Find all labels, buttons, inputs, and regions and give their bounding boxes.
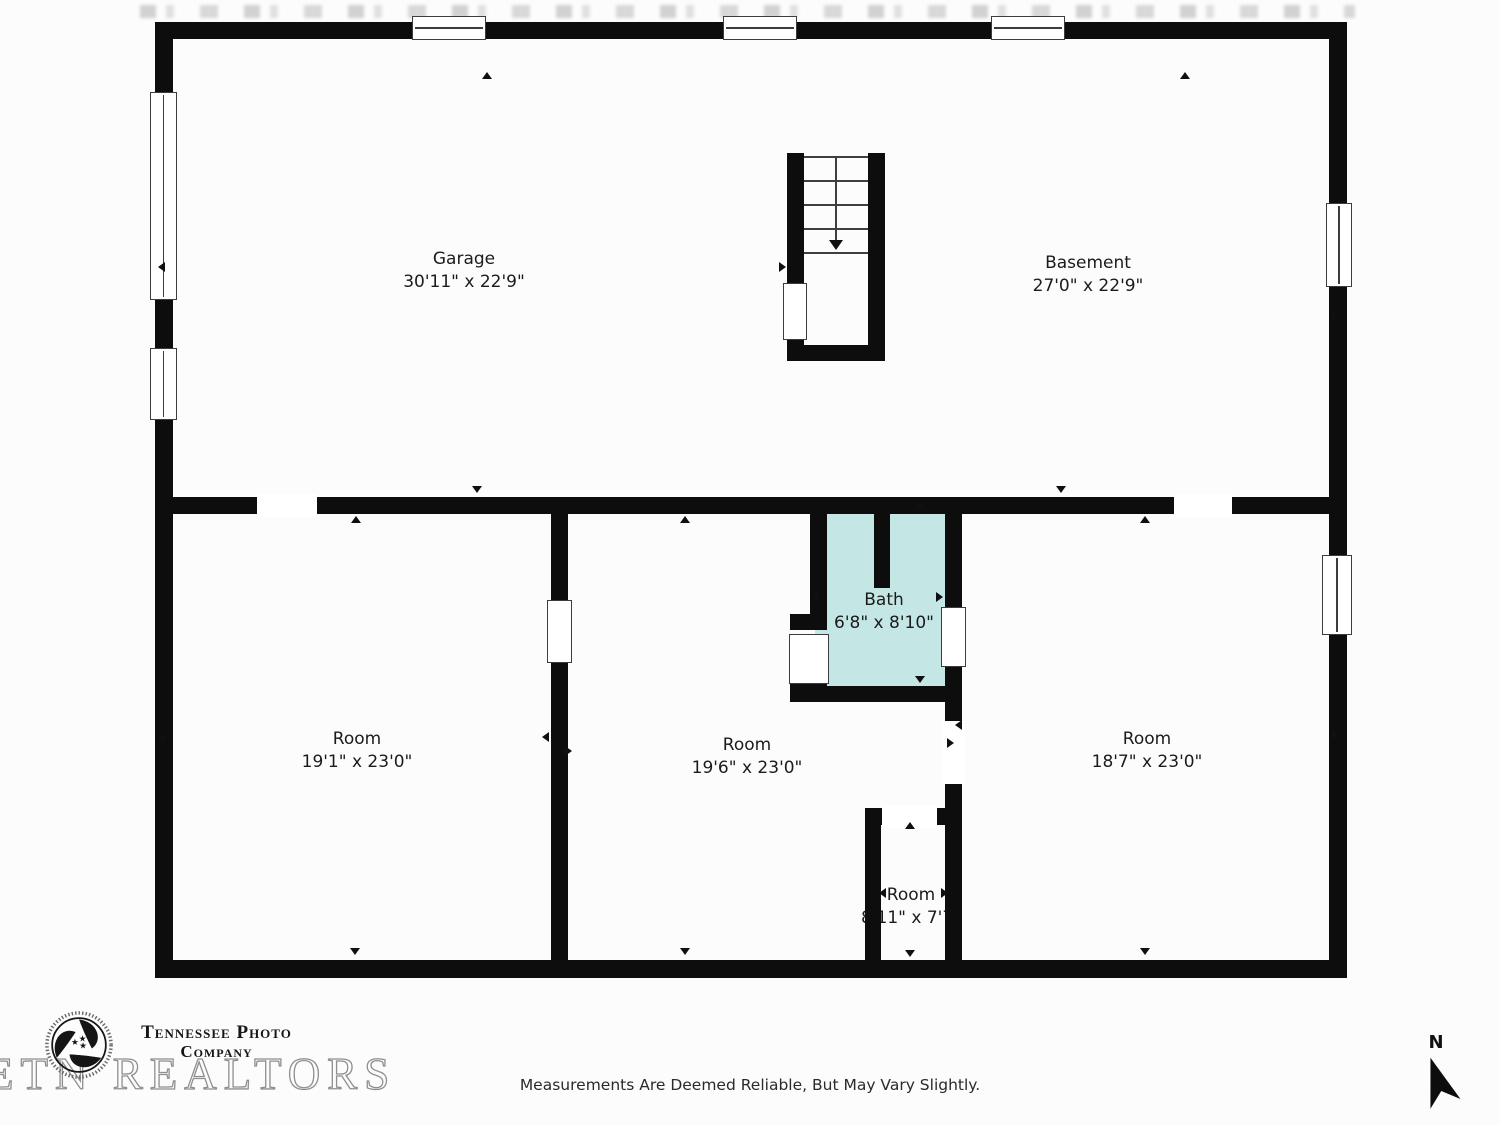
room-dims: 27'0" x 22'9" [1033, 275, 1144, 298]
doorway-gap [942, 721, 965, 784]
measure-arrow-icon [812, 592, 819, 602]
measure-arrow-icon [1140, 948, 1150, 955]
room-label-bath: Bath 6'8" x 8'10" [834, 589, 934, 635]
wall-outer-bottom [155, 960, 1345, 978]
window-symbol [1326, 203, 1352, 287]
window-symbol [412, 16, 486, 40]
room-name: Bath [834, 589, 934, 612]
measure-arrow-icon [1180, 72, 1190, 79]
measure-arrow-icon [905, 822, 915, 829]
window-pane-line [163, 351, 165, 417]
room-dims: 19'1" x 23'0" [302, 751, 413, 774]
measure-arrow-icon [542, 732, 549, 742]
room-dims: 19'6" x 23'0" [692, 757, 803, 780]
floor-plan: Garage 30'11" x 22'9" Basement 27'0" x 2… [0, 0, 1500, 1125]
measure-arrow-icon [350, 948, 360, 955]
room-name: Room [1092, 728, 1203, 751]
measure-arrow-icon [472, 486, 482, 493]
window-pane-line [994, 27, 1062, 29]
measure-arrow-icon [1332, 310, 1339, 320]
room-name: Basement [1033, 252, 1144, 275]
stair-direction-arrow-icon [829, 240, 843, 250]
room-label-right: Room 18'7" x 23'0" [1092, 728, 1203, 774]
measure-arrow-icon [1332, 730, 1339, 740]
window-pane-line [415, 27, 483, 29]
measure-arrow-icon [941, 888, 948, 898]
wall-mid-left [551, 497, 568, 960]
disclaimer-text: Measurements Are Deemed Reliable, But Ma… [0, 1076, 1500, 1094]
wall-bath-jog [790, 614, 827, 630]
svg-text:★: ★ [79, 1035, 87, 1045]
measure-arrow-icon [936, 592, 943, 602]
room-label-basement: Basement 27'0" x 22'9" [1033, 252, 1144, 298]
north-arrow-icon [1410, 1053, 1468, 1115]
room-label-left: Room 19'1" x 23'0" [302, 728, 413, 774]
doorway-gap [257, 494, 317, 517]
wall-stair-right [868, 153, 885, 361]
room-dims: 18'7" x 23'0" [1092, 751, 1203, 774]
window-symbol [1322, 555, 1352, 635]
measure-arrow-icon [905, 950, 915, 957]
stair-tread [804, 252, 869, 254]
room-name: Garage [403, 248, 525, 271]
measure-arrow-icon [158, 262, 165, 272]
compass: N [1404, 1032, 1474, 1119]
window-symbol [150, 348, 177, 420]
room-label-middle: Room 19'6" x 23'0" [692, 734, 803, 780]
measure-arrow-icon [680, 948, 690, 955]
room-dims: 6'8" x 8'10" [834, 612, 934, 635]
measure-arrow-icon [915, 502, 925, 509]
measure-arrow-icon [879, 888, 886, 898]
window-pane-line [1338, 206, 1340, 284]
wall-bath-left [810, 497, 827, 630]
photo-company-logo: ★ ★ ★ Tennessee Photo Company [44, 1010, 309, 1080]
measure-arrow-icon [1056, 486, 1066, 493]
window-symbol [991, 16, 1065, 40]
measure-arrow-icon [947, 738, 954, 748]
room-dims: 30'11" x 22'9" [403, 271, 525, 294]
logo-line2: Company [124, 1042, 309, 1062]
measure-arrow-icon [779, 262, 786, 272]
stair-direction-line [835, 157, 837, 241]
wall-stair-bottom [787, 345, 885, 361]
window-pane-line [726, 27, 794, 29]
measure-arrow-icon [955, 720, 962, 730]
svg-text:★: ★ [71, 1038, 79, 1048]
door-opening [783, 283, 807, 340]
window-symbol [723, 16, 797, 40]
measure-arrow-icon [680, 516, 690, 523]
door-opening [941, 607, 966, 667]
window-symbol [547, 600, 572, 663]
wall-smallroom-left [865, 808, 881, 965]
measure-arrow-icon [1140, 516, 1150, 523]
door-opening [789, 634, 829, 684]
wall-bath-partition [874, 497, 890, 588]
camera-shutter-logo-icon: ★ ★ ★ [44, 1010, 114, 1080]
room-name: Room [692, 734, 803, 757]
measure-arrow-icon [482, 72, 492, 79]
measure-arrow-icon [351, 516, 361, 523]
window-pane-line [1336, 558, 1338, 632]
logo-text: Tennessee Photo Company [124, 1022, 309, 1062]
room-label-garage: Garage 30'11" x 22'9" [403, 248, 525, 294]
measure-arrow-icon [915, 676, 925, 683]
measure-arrow-icon [158, 734, 165, 744]
wall-bath-bottom [810, 686, 962, 702]
logo-line1: Tennessee Photo [124, 1022, 309, 1044]
measure-arrow-icon [565, 746, 572, 756]
compass-north-label: N [1398, 1032, 1474, 1053]
wall-divider [155, 497, 1345, 514]
room-name: Room [302, 728, 413, 751]
doorway-gap [1174, 494, 1232, 517]
